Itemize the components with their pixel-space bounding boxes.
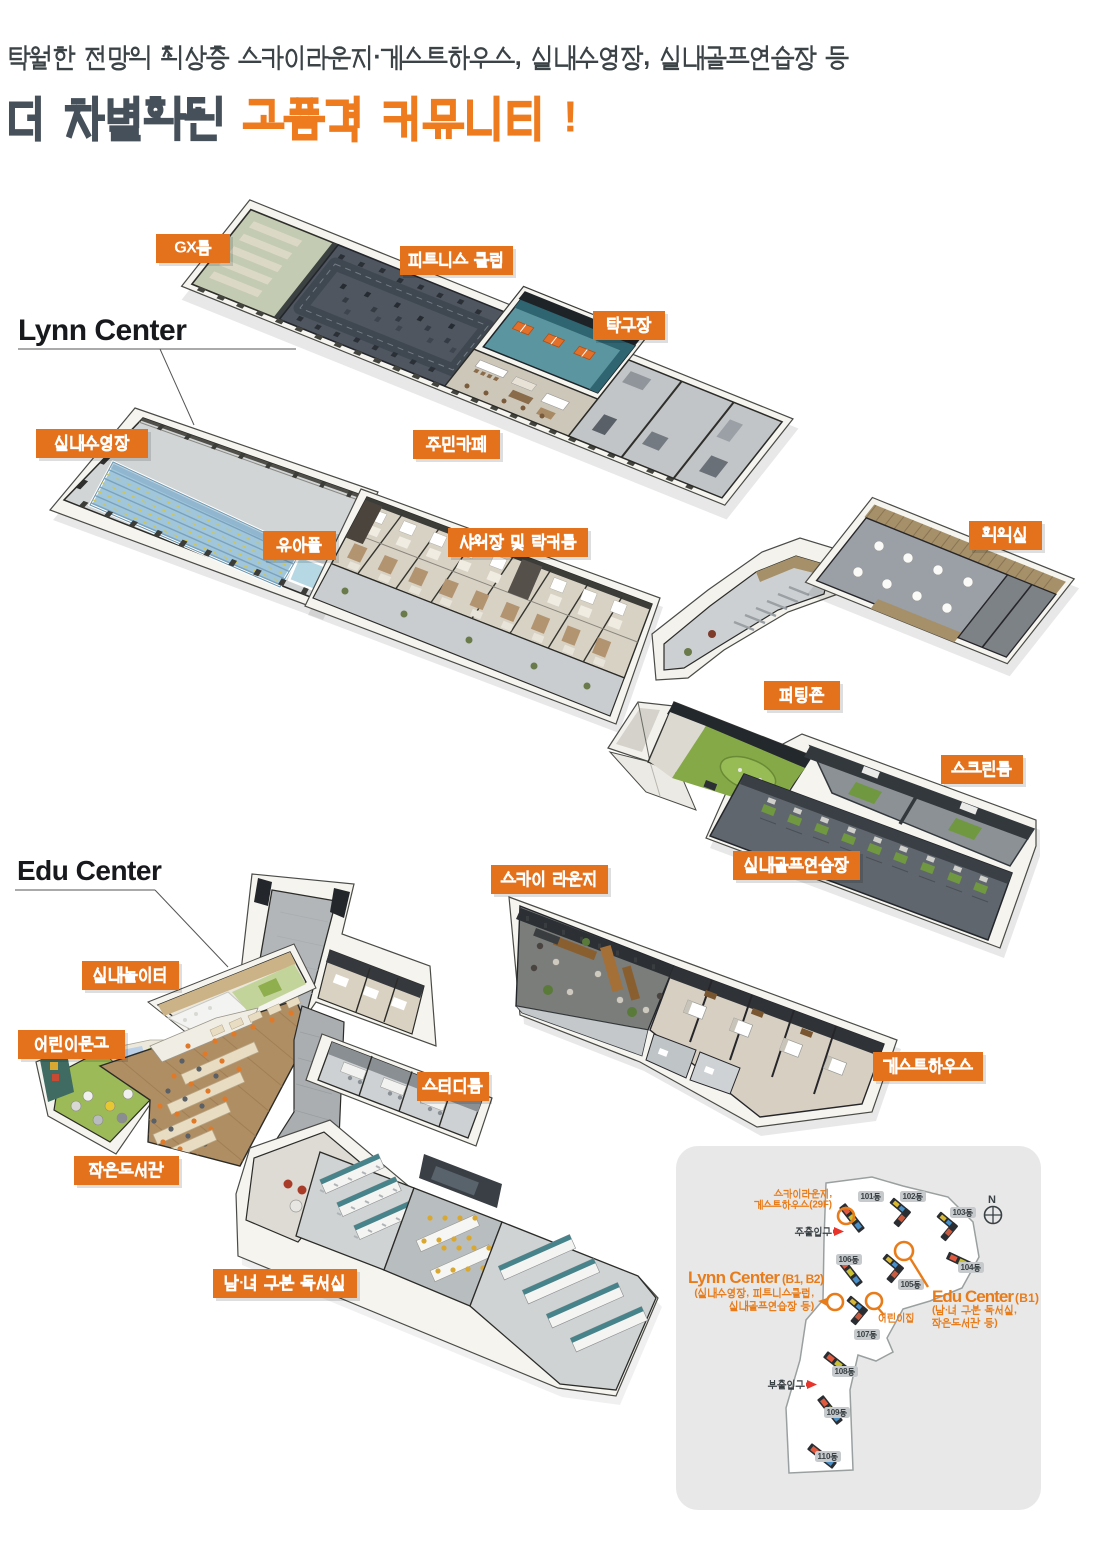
svg-text:Edu Center: Edu Center <box>932 1287 1014 1306</box>
svg-text:(29F): (29F) <box>809 1200 832 1211</box>
svg-text:·: · <box>373 43 381 71</box>
svg-text:101: 101 <box>861 1192 874 1201</box>
svg-text:110: 110 <box>818 1452 831 1461</box>
svg-text:(B1): (B1) <box>1015 1291 1039 1305</box>
svg-text:105: 105 <box>901 1280 914 1289</box>
svg-text:,: , <box>643 43 650 71</box>
svg-text:Edu Center: Edu Center <box>17 855 162 886</box>
svg-text:N: N <box>988 1194 996 1206</box>
svg-text:108: 108 <box>835 1367 848 1376</box>
svg-text:,: , <box>746 1288 749 1299</box>
svg-text:,: , <box>829 1189 832 1200</box>
svg-text:104: 104 <box>961 1263 974 1272</box>
svg-text:·: · <box>239 1274 244 1292</box>
svg-text:(B1, B2): (B1, B2) <box>782 1272 824 1286</box>
svg-text:107: 107 <box>857 1330 870 1339</box>
svg-text:109: 109 <box>827 1408 840 1417</box>
svg-text:,: , <box>811 1288 814 1299</box>
svg-text:106: 106 <box>839 1255 852 1264</box>
svg-text:): ) <box>811 1301 814 1312</box>
svg-text:(: ( <box>694 1288 698 1299</box>
svg-text:(: ( <box>932 1305 936 1316</box>
svg-text:GX: GX <box>174 239 197 257</box>
svg-text:,: , <box>515 43 522 71</box>
svg-text:): ) <box>994 1318 997 1329</box>
svg-text:Lynn Center: Lynn Center <box>688 1268 780 1287</box>
svg-text:!: ! <box>563 93 578 142</box>
svg-text:·: · <box>945 1305 948 1316</box>
svg-text:102: 102 <box>903 1192 916 1201</box>
svg-text:103: 103 <box>953 1208 966 1217</box>
svg-text:Lynn Center: Lynn Center <box>18 314 187 347</box>
svg-text:,: , <box>1014 1305 1017 1316</box>
